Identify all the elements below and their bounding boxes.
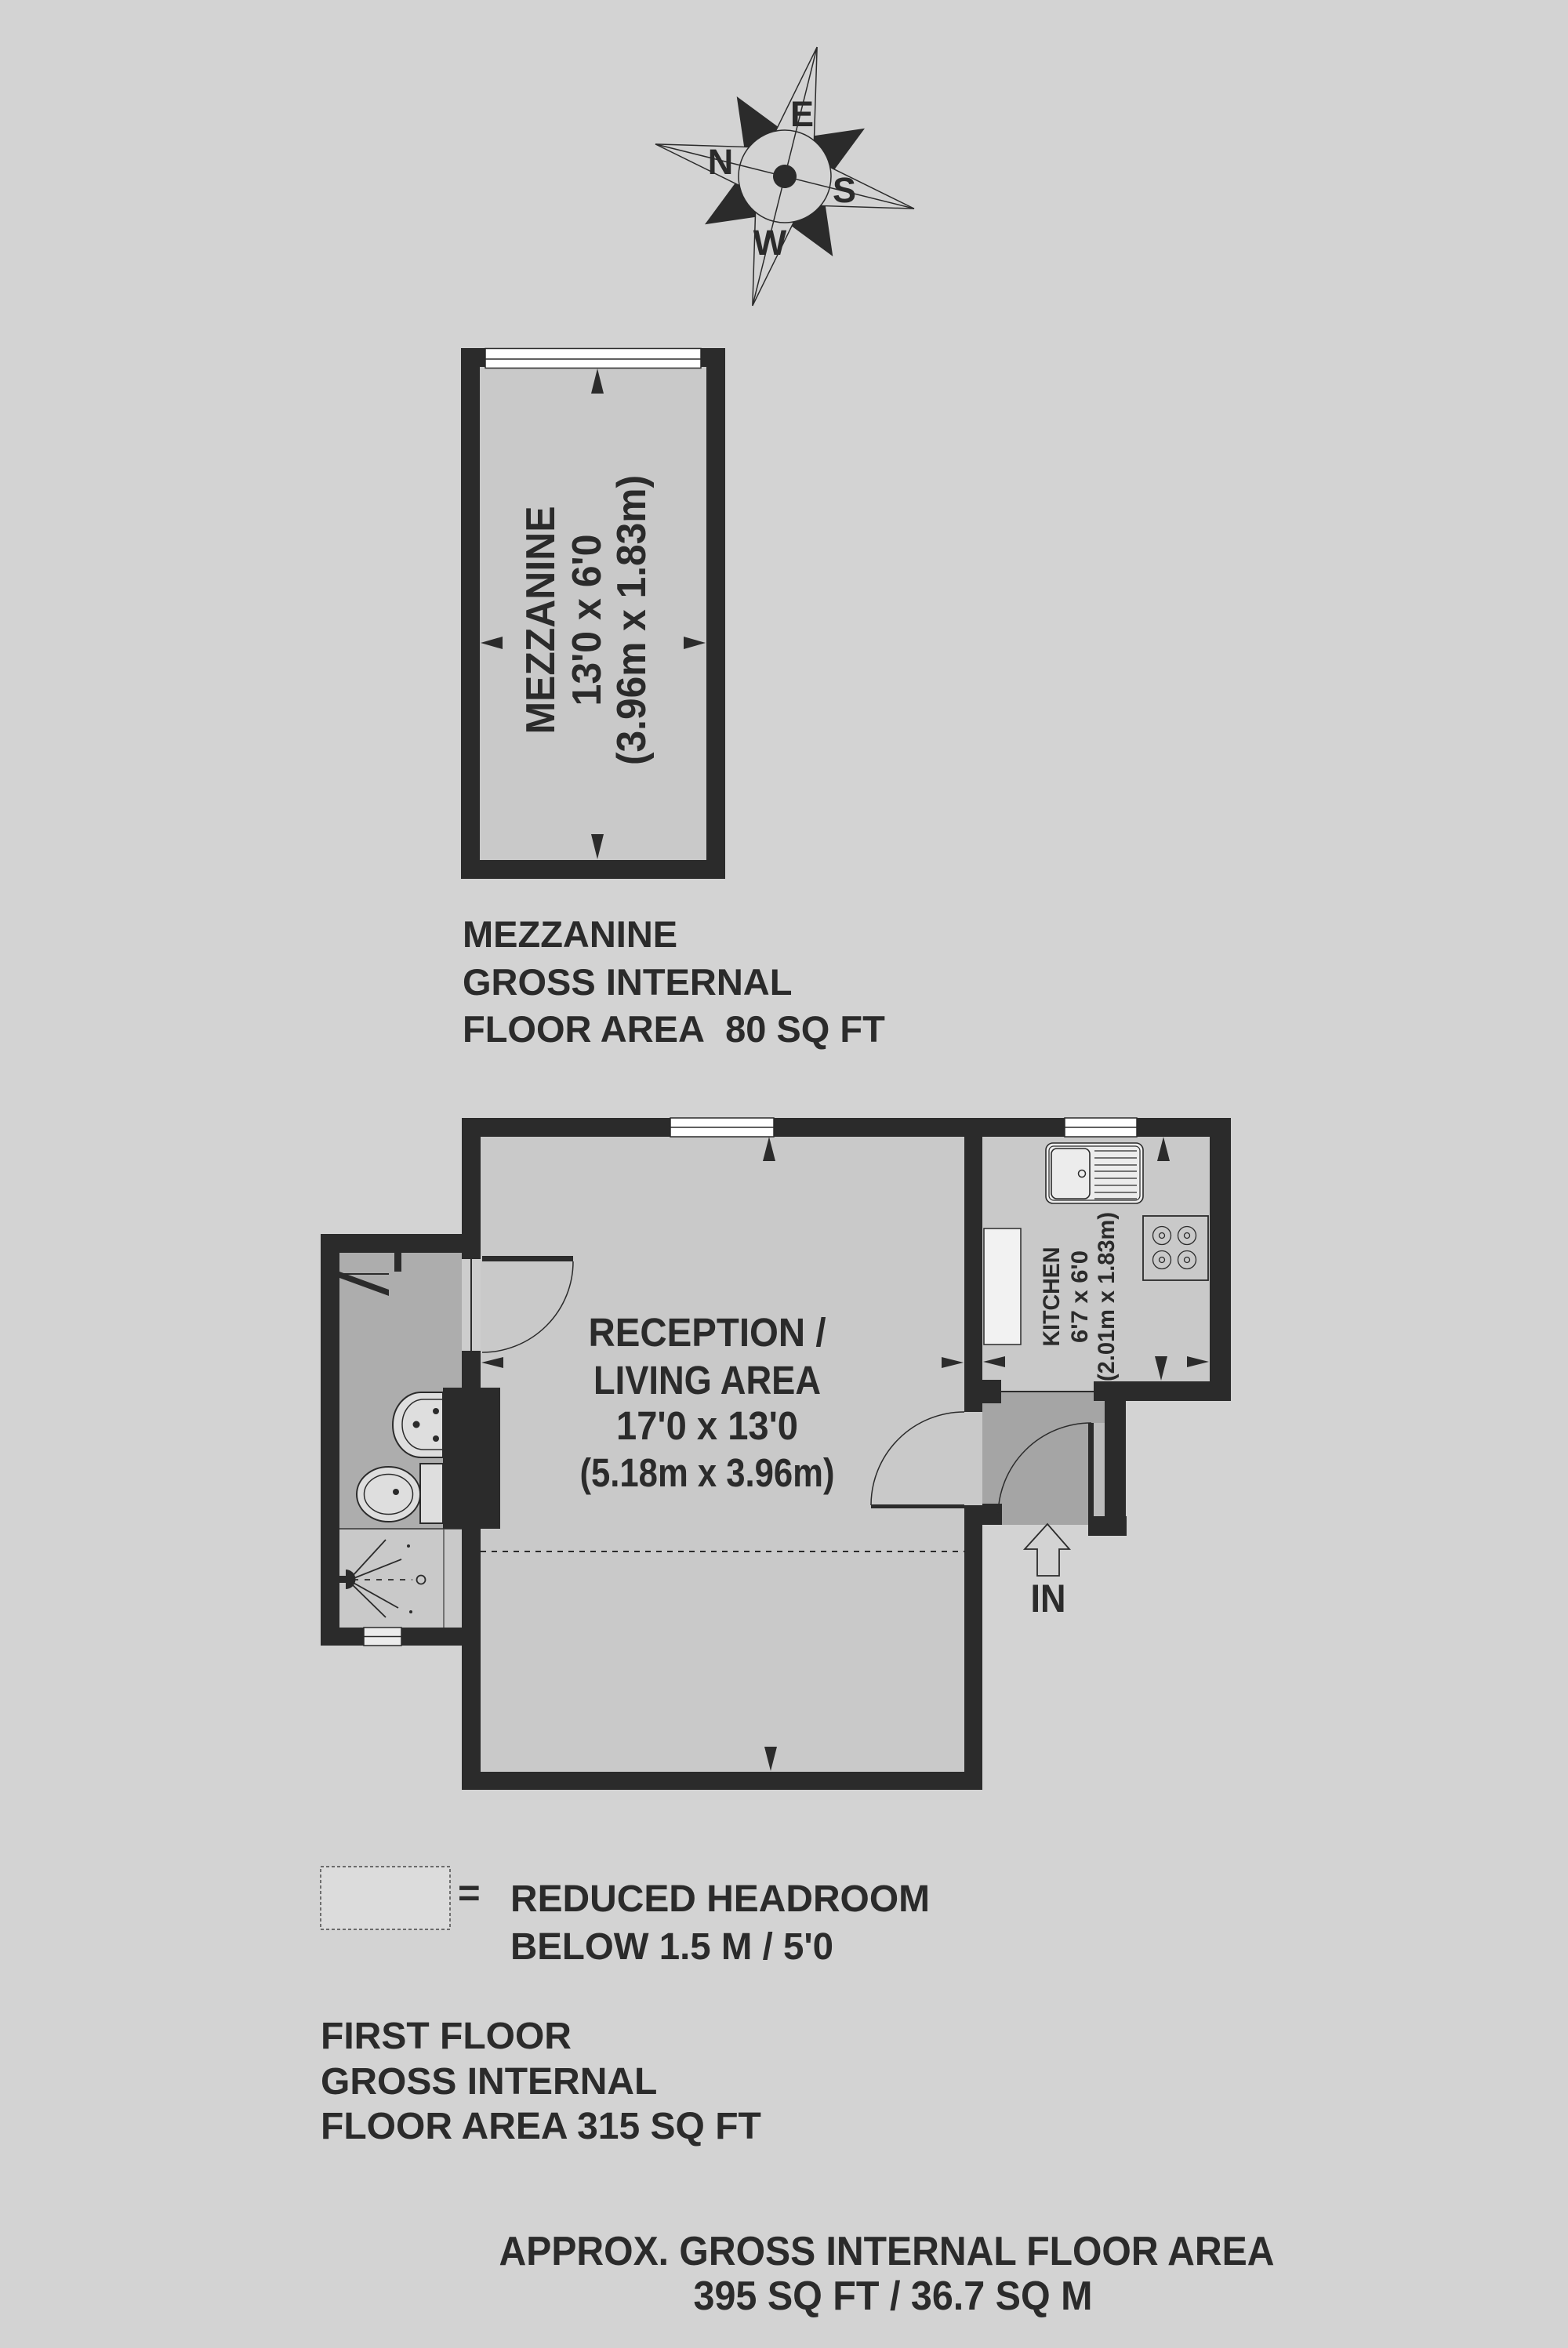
svg-text:=: = — [458, 1872, 481, 1914]
svg-text:GROSS INTERNAL: GROSS INTERNAL — [463, 961, 792, 1003]
svg-text:FLOOR AREA 80 SQ FT: FLOOR AREA 80 SQ FT — [463, 1008, 885, 1050]
svg-text:BELOW 1.5 M / 5'0: BELOW 1.5 M / 5'0 — [510, 1926, 833, 1968]
svg-text:E: E — [790, 94, 814, 134]
svg-text:LIVING AREA: LIVING AREA — [593, 1358, 821, 1403]
svg-text:395 SQ FT / 36.7 SQ M: 395 SQ FT / 36.7 SQ M — [694, 2274, 1093, 2319]
svg-text:17'0 x 13'0: 17'0 x 13'0 — [616, 1403, 798, 1448]
svg-text:KITCHEN: KITCHEN — [1039, 1247, 1065, 1347]
svg-text:REDUCED HEADROOM: REDUCED HEADROOM — [510, 1878, 930, 1920]
svg-text:MEZZANINE: MEZZANINE — [463, 913, 677, 955]
svg-text:(5.18m x 3.96m): (5.18m x 3.96m) — [580, 1450, 835, 1495]
svg-text:S: S — [833, 170, 856, 210]
svg-text:6'7 x 6'0: 6'7 x 6'0 — [1067, 1250, 1093, 1343]
svg-text:13'0 x 6'0: 13'0 x 6'0 — [564, 535, 610, 706]
svg-text:(3.96m x 1.83m): (3.96m x 1.83m) — [609, 475, 655, 765]
svg-text:IN: IN — [1031, 1577, 1066, 1620]
svg-text:W: W — [753, 223, 787, 263]
svg-text:FIRST FLOOR: FIRST FLOOR — [321, 2016, 572, 2057]
svg-text:APPROX. GROSS INTERNAL FLOOR A: APPROX. GROSS INTERNAL FLOOR AREA — [499, 2229, 1275, 2274]
svg-text:RECEPTION /: RECEPTION / — [589, 1310, 826, 1355]
svg-text:MEZZANINE: MEZZANINE — [518, 506, 564, 735]
svg-text:N: N — [708, 142, 734, 182]
svg-text:FLOOR AREA 315 SQ FT: FLOOR AREA 315 SQ FT — [321, 2106, 761, 2147]
svg-text:GROSS INTERNAL: GROSS INTERNAL — [321, 2061, 657, 2103]
svg-text:(2.01m x 1.83m): (2.01m x 1.83m) — [1094, 1212, 1120, 1381]
